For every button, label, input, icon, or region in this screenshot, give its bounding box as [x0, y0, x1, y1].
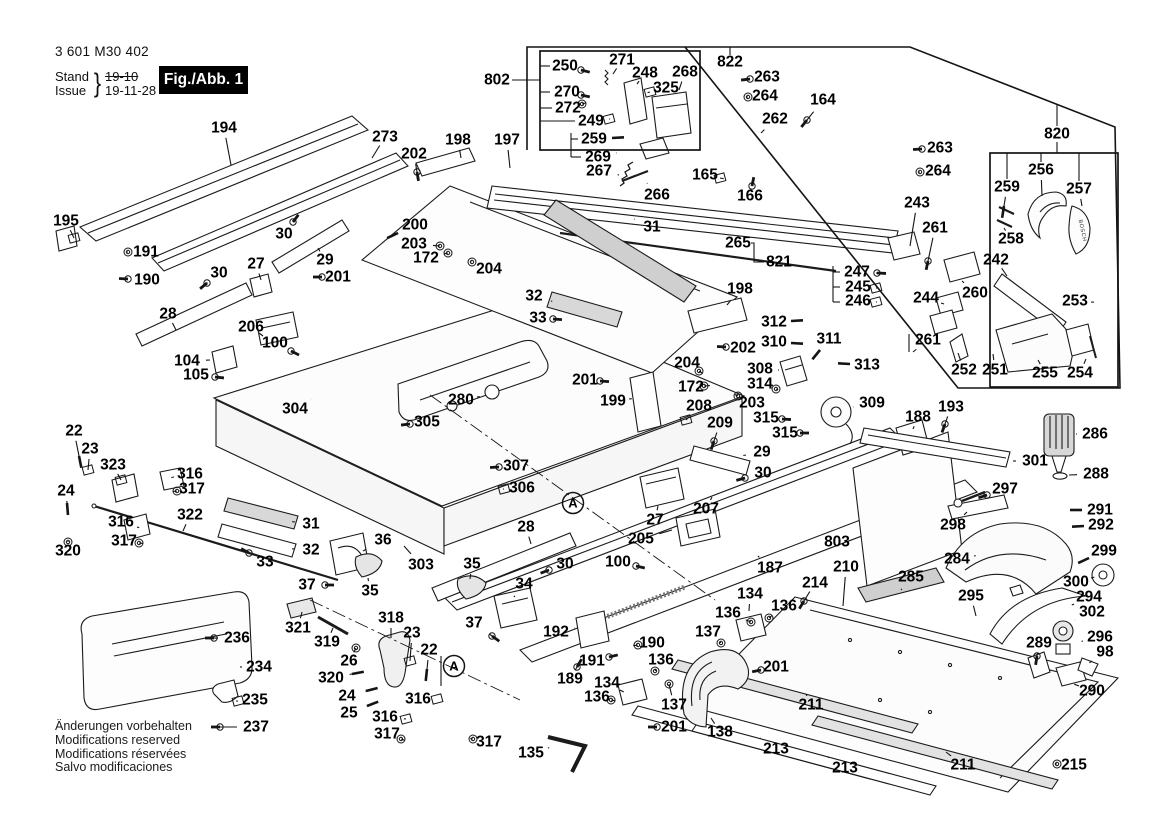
leader-line-27 — [657, 506, 658, 510]
callout-201: 201 — [661, 719, 687, 736]
callout-191: 191 — [579, 653, 605, 670]
screw-icon — [553, 319, 562, 320]
screw-icon — [417, 172, 418, 181]
callout-30: 30 — [556, 556, 573, 573]
callout-211: 211 — [950, 757, 975, 774]
leader-line-210 — [843, 577, 845, 606]
callout-209: 209 — [707, 415, 733, 432]
callout-298: 298 — [940, 517, 966, 534]
leader-line-257 — [1081, 199, 1082, 206]
pin-icon — [838, 363, 850, 364]
callout-213: 213 — [763, 741, 789, 758]
callout-301: 301 — [1022, 453, 1048, 470]
leader-line-261 — [913, 349, 916, 352]
callout-251: 251 — [982, 362, 1008, 379]
callout-34: 34 — [515, 576, 533, 593]
article-number: 3 601 M30 402 — [55, 44, 156, 59]
title-block: 3 601 M30 402 Stand Issue } 19-10 19-11-… — [55, 44, 156, 99]
footer-line-es: Salvo modificaciones — [55, 761, 192, 775]
leader-line-213 — [828, 757, 829, 758]
callout-263: 263 — [927, 140, 953, 157]
callout-319: 319 — [314, 634, 340, 651]
callout-321: 321 — [285, 620, 311, 637]
pin-icon — [352, 672, 364, 674]
leader-line-22 — [76, 441, 79, 456]
callout-311: 311 — [816, 331, 841, 348]
callout-268: 268 — [672, 64, 698, 81]
pin-icon — [791, 320, 803, 321]
callout-261: 261 — [915, 332, 941, 349]
screw-icon — [600, 381, 609, 382]
leader-line-294 — [1072, 604, 1074, 605]
leader-line-254 — [1084, 359, 1086, 364]
part-302-knob — [1053, 621, 1073, 641]
callout-249: 249 — [578, 113, 604, 130]
brace-glyph: } — [94, 68, 101, 99]
callout-28: 28 — [517, 519, 535, 536]
callout-24: 24 — [57, 483, 75, 500]
leader-line-187 — [758, 556, 759, 557]
leader-line-325 — [648, 92, 650, 93]
callout-821: 821 — [766, 254, 792, 271]
part-27-label-tag — [640, 468, 684, 508]
callout-26: 26 — [340, 653, 358, 670]
callout-803: 803 — [824, 534, 850, 551]
callout-254: 254 — [1067, 365, 1093, 382]
callout-36: 36 — [374, 532, 392, 549]
stand-label: Stand — [55, 70, 89, 84]
callout-198: 198 — [445, 132, 471, 149]
leader-line-22 — [427, 660, 428, 669]
part-252-wedge — [950, 334, 968, 362]
leader-line-165 — [720, 178, 724, 179]
part-32-scale-strip — [218, 524, 296, 557]
pin-icon — [812, 350, 820, 359]
callout-304: 304 — [282, 401, 308, 418]
callout-310: 310 — [761, 334, 787, 351]
callout-295: 295 — [958, 588, 984, 605]
leader-line-29 — [743, 455, 746, 456]
callout-23: 23 — [81, 441, 99, 458]
leader-line-34 — [514, 596, 515, 597]
leader-line-256 — [1041, 180, 1042, 196]
part-308-bracket — [780, 356, 807, 386]
callout-22: 22 — [65, 423, 82, 440]
part-135-hex-key — [548, 737, 585, 772]
callout-270: 270 — [554, 84, 580, 101]
callout-204: 204 — [674, 355, 700, 372]
revision-block: Stand Issue } 19-10 19-11-28 — [55, 68, 156, 99]
callout-202: 202 — [401, 146, 427, 163]
callout-236: 236 — [224, 630, 250, 647]
callout-138: 138 — [707, 724, 733, 741]
leader-line-260 — [962, 281, 964, 283]
callout-322: 322 — [177, 507, 203, 524]
leader-line-23 — [410, 643, 411, 661]
screw-icon — [741, 79, 750, 80]
callout-136: 136 — [648, 652, 674, 669]
leader-line-268 — [679, 81, 682, 90]
callout-323: 323 — [100, 457, 126, 474]
callout-198: 198 — [727, 281, 753, 298]
screw-icon — [752, 670, 761, 672]
part-260-bracket — [944, 252, 980, 282]
callout-290: 290 — [1079, 683, 1105, 700]
part-269-clamp — [640, 138, 669, 159]
leader-line-271 — [613, 68, 617, 74]
callout-316: 316 — [405, 691, 431, 708]
callout-265: 265 — [725, 235, 751, 252]
callout-280: 280 — [448, 392, 474, 409]
callout-136: 136 — [715, 605, 741, 622]
footer-notes: Änderungen vorbehalten Modifications res… — [55, 720, 192, 775]
issue-label: Issue — [55, 84, 89, 98]
part-288-washer — [1053, 473, 1067, 479]
stand-value: 19-10 — [105, 70, 156, 84]
callout-235: 235 — [242, 692, 268, 709]
leader-line-285 — [901, 589, 902, 590]
callout-246: 246 — [845, 293, 871, 310]
callout-317: 317 — [476, 734, 502, 751]
leader-line-35 — [470, 574, 471, 579]
pin-icon — [67, 503, 68, 515]
pin-icon — [791, 343, 803, 344]
part-34-bracket — [494, 588, 537, 628]
callout-195: 195 — [53, 213, 79, 230]
callout-213: 213 — [832, 760, 858, 777]
callout-30: 30 — [275, 226, 292, 243]
leader-line-295 — [973, 606, 976, 616]
leader-line-262 — [761, 130, 764, 133]
leader-line-316 — [137, 527, 139, 528]
detail-marker-letter: A — [449, 659, 459, 674]
callout-192: 192 — [543, 624, 569, 641]
callout-253: 253 — [1062, 293, 1088, 310]
callout-215: 215 — [1061, 757, 1087, 774]
callout-202: 202 — [730, 340, 756, 357]
callout-316: 316 — [108, 514, 134, 531]
screw-icon — [1036, 656, 1037, 665]
callout-172: 172 — [678, 379, 704, 396]
callout-257: 257 — [1066, 181, 1092, 198]
callout-136: 136 — [584, 689, 610, 706]
callout-100: 100 — [605, 554, 631, 571]
callout-313: 313 — [854, 357, 880, 374]
screw-icon — [752, 177, 754, 186]
callout-286: 286 — [1082, 426, 1108, 443]
callout-244: 244 — [913, 290, 939, 307]
leader-line-197 — [508, 150, 510, 168]
callout-135: 135 — [518, 745, 544, 762]
callout-307: 307 — [503, 458, 529, 475]
pin-icon — [367, 702, 378, 706]
part-195-end-cap — [56, 226, 77, 251]
callout-316: 316 — [372, 709, 398, 726]
pin-icon — [426, 669, 427, 681]
callout-264: 264 — [925, 163, 951, 180]
callout-199: 199 — [600, 393, 626, 410]
callout-136: 136 — [771, 598, 797, 615]
callout-242: 242 — [983, 252, 1009, 269]
callout-32: 32 — [302, 542, 319, 559]
leader-line-273 — [372, 146, 380, 158]
callout-820: 820 — [1044, 126, 1070, 143]
callout-234: 234 — [246, 659, 272, 676]
callout-255: 255 — [1032, 365, 1058, 382]
callout-33: 33 — [529, 310, 547, 327]
callout-208: 208 — [686, 398, 712, 415]
callout-35: 35 — [463, 556, 481, 573]
callout-31: 31 — [302, 516, 320, 533]
callout-200: 200 — [402, 217, 428, 234]
callout-189: 189 — [557, 671, 583, 688]
callout-32: 32 — [525, 288, 542, 305]
part-29-rail — [690, 446, 750, 475]
part-35-foot — [355, 554, 382, 577]
callout-264: 264 — [752, 88, 778, 105]
callout-317: 317 — [179, 481, 205, 498]
callout-29: 29 — [316, 252, 334, 269]
part-27-clip — [250, 274, 272, 297]
callout-320: 320 — [318, 670, 344, 687]
callout-188: 188 — [905, 409, 931, 426]
callout-24: 24 — [338, 688, 356, 705]
callout-211: 211 — [798, 697, 823, 714]
callout-288: 288 — [1083, 466, 1109, 483]
part-309-cam — [821, 397, 852, 444]
callout-299: 299 — [1091, 543, 1117, 560]
callout-250: 250 — [552, 58, 578, 75]
callout-266: 266 — [644, 187, 670, 204]
footer-line-en: Modifications reserved — [55, 734, 192, 748]
callout-201: 201 — [763, 659, 789, 676]
callout-309: 309 — [859, 395, 885, 412]
leader-line-319 — [331, 628, 333, 633]
callout-267: 267 — [586, 163, 612, 180]
callout-197: 197 — [494, 132, 520, 149]
callout-30: 30 — [754, 465, 771, 482]
pin-icon — [1078, 558, 1089, 563]
callout-205: 205 — [628, 531, 654, 548]
screw-icon — [401, 424, 410, 425]
callout-194: 194 — [211, 120, 237, 137]
part-104-bracket — [212, 346, 237, 373]
callout-193: 193 — [938, 399, 964, 416]
callout-22: 22 — [420, 642, 437, 659]
callout-318: 318 — [378, 610, 404, 627]
part-258-pins — [997, 207, 1014, 227]
callout-27: 27 — [247, 256, 264, 273]
callout-292: 292 — [1088, 517, 1114, 534]
callout-285: 285 — [898, 569, 924, 586]
callout-137: 137 — [695, 624, 721, 641]
leader-line-280 — [477, 396, 480, 397]
callout-259: 259 — [994, 179, 1020, 196]
part-271-spring — [605, 70, 608, 85]
callout-306: 306 — [509, 480, 535, 497]
callout-105: 105 — [183, 367, 209, 384]
footer-line-de: Änderungen vorbehalten — [55, 720, 192, 734]
callout-28: 28 — [159, 306, 177, 323]
callout-165: 165 — [692, 167, 718, 184]
callout-35: 35 — [361, 583, 379, 600]
callout-37: 37 — [465, 615, 482, 632]
callout-137: 137 — [661, 697, 687, 714]
callout-166: 166 — [737, 188, 763, 205]
callout-210: 210 — [833, 559, 859, 576]
screw-icon — [736, 478, 745, 480]
screw-icon — [241, 549, 249, 553]
callout-260: 260 — [962, 285, 988, 302]
callout-100: 100 — [262, 335, 288, 352]
leader-line-259 — [1004, 197, 1005, 206]
block-icon — [431, 694, 443, 704]
callout-201: 201 — [572, 372, 598, 389]
leader-line-194 — [226, 138, 231, 165]
screw-icon — [490, 467, 499, 468]
callout-303: 303 — [408, 557, 434, 574]
callout-204: 204 — [476, 261, 502, 278]
part-256-handle — [1028, 192, 1066, 238]
callout-214: 214 — [802, 575, 828, 592]
part-296-cylinder — [1056, 644, 1070, 654]
leader-line-303 — [404, 546, 411, 554]
callout-30: 30 — [210, 265, 227, 282]
callout-317: 317 — [374, 726, 400, 743]
part-319-rod — [318, 617, 348, 634]
pin-icon — [612, 137, 624, 138]
callout-289: 289 — [1026, 635, 1052, 652]
parts-diagram-page: 1942732021981971951911903030272920128206… — [0, 0, 1166, 824]
callout-315: 315 — [772, 425, 798, 442]
leader-line-251 — [993, 354, 994, 360]
pin-icon — [1002, 206, 1004, 218]
part-323-block — [112, 474, 138, 502]
callout-31: 31 — [643, 219, 661, 236]
callout-273: 273 — [372, 129, 398, 146]
screw-icon — [636, 566, 645, 568]
callout-252: 252 — [951, 362, 977, 379]
leader-line-316 — [171, 477, 174, 478]
figure-label: Fig./Abb. 1 — [159, 66, 248, 94]
exploded-diagram-canvas: 1942732021981971951911903030272920128206… — [0, 0, 1166, 824]
leader-line-23 — [88, 459, 89, 470]
callout-206: 206 — [238, 319, 264, 336]
part-268-block — [652, 92, 691, 138]
callout-190: 190 — [134, 272, 160, 289]
detail-marker-letter: A — [568, 496, 578, 511]
callout-207: 207 — [693, 501, 719, 518]
callout-312: 312 — [761, 314, 787, 331]
callout-98: 98 — [1096, 644, 1114, 661]
callout-317: 317 — [111, 533, 137, 550]
issue-value: 19-11-28 — [105, 84, 156, 98]
screw-icon — [782, 419, 791, 420]
callout-305: 305 — [414, 414, 440, 431]
callout-802: 802 — [484, 72, 510, 89]
callout-262: 262 — [762, 111, 788, 128]
callout-190: 190 — [639, 635, 665, 652]
callout-37: 37 — [298, 577, 315, 594]
pin-icon — [79, 456, 81, 468]
callout-284: 284 — [944, 551, 970, 568]
callout-33: 33 — [256, 554, 274, 571]
screw-icon — [581, 95, 590, 97]
leader-line-322 — [183, 524, 186, 531]
screw-icon — [581, 70, 590, 72]
callout-237: 237 — [243, 719, 269, 736]
callout-320: 320 — [55, 543, 81, 560]
callout-134: 134 — [737, 586, 763, 603]
screw-icon — [926, 261, 928, 270]
callout-243: 243 — [904, 195, 930, 212]
callout-25: 25 — [340, 705, 358, 722]
callout-272: 272 — [555, 100, 581, 117]
callout-29: 29 — [753, 444, 771, 461]
part-192-plate — [576, 611, 609, 648]
screw-icon — [717, 346, 726, 347]
part-134-block — [618, 679, 647, 705]
part-248-plate — [624, 78, 647, 124]
screw-icon — [609, 655, 618, 657]
leader-line-193 — [945, 416, 948, 424]
leader-line-28 — [529, 537, 531, 544]
screw-icon — [215, 377, 224, 378]
callout-325: 325 — [653, 80, 679, 97]
callout-191: 191 — [133, 244, 159, 261]
callout-263: 263 — [754, 69, 780, 86]
footer-line-fr: Modifications réservées — [55, 748, 192, 762]
callout-822: 822 — [717, 54, 743, 71]
callout-259: 259 — [581, 131, 607, 148]
callout-258: 258 — [998, 231, 1024, 248]
callout-23: 23 — [403, 625, 421, 642]
callout-172: 172 — [413, 250, 439, 267]
part-31-scale-strip — [224, 498, 298, 529]
callout-314: 314 — [747, 376, 773, 393]
part-28-rail — [136, 283, 252, 346]
callout-201: 201 — [325, 269, 351, 286]
part-300-disc — [1092, 564, 1114, 586]
callout-302: 302 — [1079, 604, 1105, 621]
callout-27: 27 — [646, 512, 663, 529]
pin-icon — [1072, 526, 1084, 527]
callout-297: 297 — [992, 481, 1018, 498]
callout-261: 261 — [922, 220, 948, 237]
part-286-knob — [1044, 414, 1074, 472]
callout-164: 164 — [810, 92, 836, 109]
callout-256: 256 — [1028, 162, 1054, 179]
pin-icon — [366, 688, 378, 691]
callout-187: 187 — [757, 560, 783, 577]
part-267-spring — [620, 162, 633, 186]
